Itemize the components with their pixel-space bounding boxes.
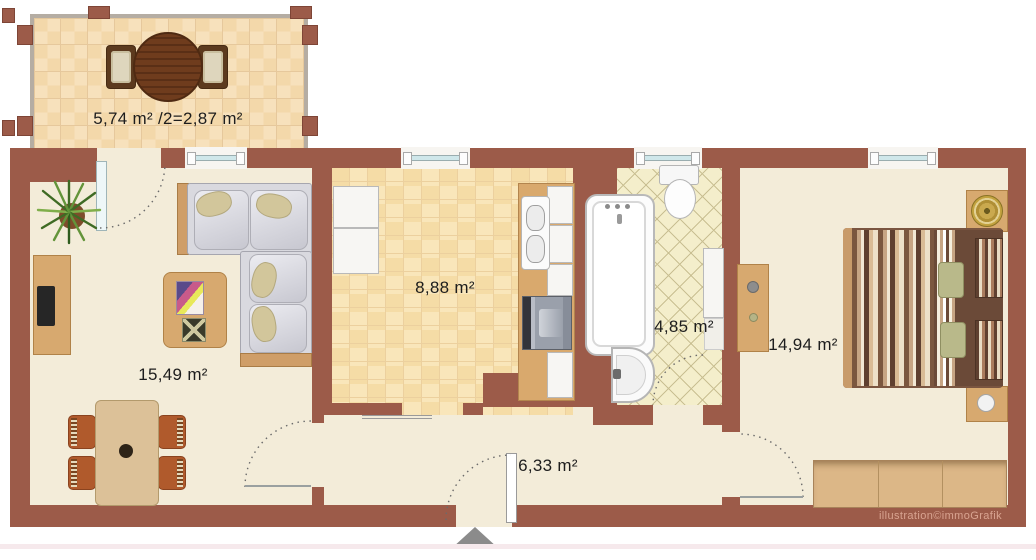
bedroom-window [868, 147, 938, 169]
wall-living-kitchen [312, 168, 332, 403]
bed-pillow [975, 320, 1003, 380]
bedroom-door-opening [722, 432, 740, 497]
living-door-opening [312, 423, 324, 487]
window-cap [403, 152, 412, 165]
potted-plant-icon [36, 176, 102, 246]
stove [522, 296, 572, 350]
wall-stub [312, 403, 324, 423]
bed-pillow [975, 238, 1003, 298]
bathroom-door-opening [653, 405, 703, 425]
kitchen-cabinet [333, 186, 379, 228]
kitchen-doormat [362, 415, 432, 419]
railing-post [17, 116, 33, 136]
chair-armrest [71, 459, 77, 487]
accent-cushion [940, 322, 966, 358]
wall-bath-hall [593, 405, 653, 425]
bathroom-area-label: 4,85 m² [604, 317, 764, 337]
balcony-area-label: 5,74 m² /2=2,87 m² [58, 109, 278, 129]
living-room-area-label: 15,49 m² [93, 365, 253, 385]
window-glazing [872, 155, 934, 161]
table-lamp [971, 195, 1003, 227]
floor-plan: 5,74 m² /2=2,87 m² [0, 0, 1036, 560]
counter-door [547, 352, 573, 398]
window-cap [870, 152, 879, 165]
wardrobe [813, 460, 1007, 508]
living-room-window [185, 147, 247, 169]
outer-wall-left [10, 148, 30, 527]
balcony-round-table [133, 32, 203, 102]
hallway-area-label: 6,33 m² [468, 456, 628, 476]
bathtub-spout [617, 214, 622, 224]
toilet-bowl [664, 179, 696, 219]
window-cap [636, 152, 645, 165]
dining-chair [158, 456, 186, 490]
chair-cushion [111, 51, 131, 83]
entrance-opening [456, 505, 512, 527]
accent-cushion [938, 262, 964, 298]
railing-post [2, 8, 15, 23]
tv [37, 286, 55, 326]
corner-sofa-chaise [240, 251, 312, 355]
dining-chair [158, 415, 186, 449]
bathroom-shelf [703, 248, 724, 318]
double-bed [843, 228, 1003, 388]
table-centerpiece [119, 444, 133, 458]
kitchen-window [401, 147, 470, 169]
window-cap [691, 152, 700, 165]
railing-post [302, 116, 318, 136]
balcony-chair [106, 45, 136, 89]
magazine [176, 281, 204, 315]
railing-post [290, 6, 312, 19]
wall-stub [312, 487, 324, 507]
counter-door [547, 186, 573, 224]
dining-chair [68, 456, 96, 490]
dining-chair [68, 415, 96, 449]
chair-armrest [177, 459, 183, 487]
window-cap [459, 152, 468, 165]
wall-stub [463, 403, 483, 415]
wall-kitchen-hall [324, 403, 402, 415]
window-cap [927, 152, 936, 165]
counter-door [547, 264, 573, 296]
sink-basin [526, 205, 545, 231]
wardrobe-divider [878, 461, 879, 507]
bathtub-faucet [605, 204, 610, 209]
bedroom-area-label: 14,94 m² [723, 335, 883, 355]
window-glazing [638, 155, 698, 161]
chair-armrest [177, 418, 183, 446]
railing-post [302, 25, 318, 45]
dresser-decor [747, 281, 759, 293]
page-edge [0, 544, 1036, 549]
window-cap [187, 152, 196, 165]
kitchen-area-label: 8,88 m² [365, 278, 525, 298]
bed-duvet [852, 230, 934, 386]
counter-door [547, 225, 573, 263]
window-cap [236, 152, 245, 165]
nightstand-decor [977, 394, 995, 412]
railing-post [88, 6, 110, 19]
bed-footboard [843, 228, 852, 388]
window-glazing [189, 155, 243, 161]
kitchen-sink [521, 196, 550, 270]
table-decor [182, 318, 206, 342]
chair-armrest [71, 418, 77, 446]
window-glazing [405, 155, 466, 161]
railing-post [2, 120, 15, 136]
sink-faucet [613, 369, 621, 379]
stove-front [539, 309, 563, 337]
watermark: illustration©immoGrafik [790, 510, 1002, 522]
outer-wall-right [1008, 148, 1026, 527]
plant-leaves [38, 181, 100, 243]
chair-cushion [203, 51, 223, 83]
kitchen-cabinet [333, 228, 379, 274]
railing-post [17, 25, 33, 45]
sink-basin [526, 235, 545, 263]
wardrobe-divider [942, 461, 943, 507]
